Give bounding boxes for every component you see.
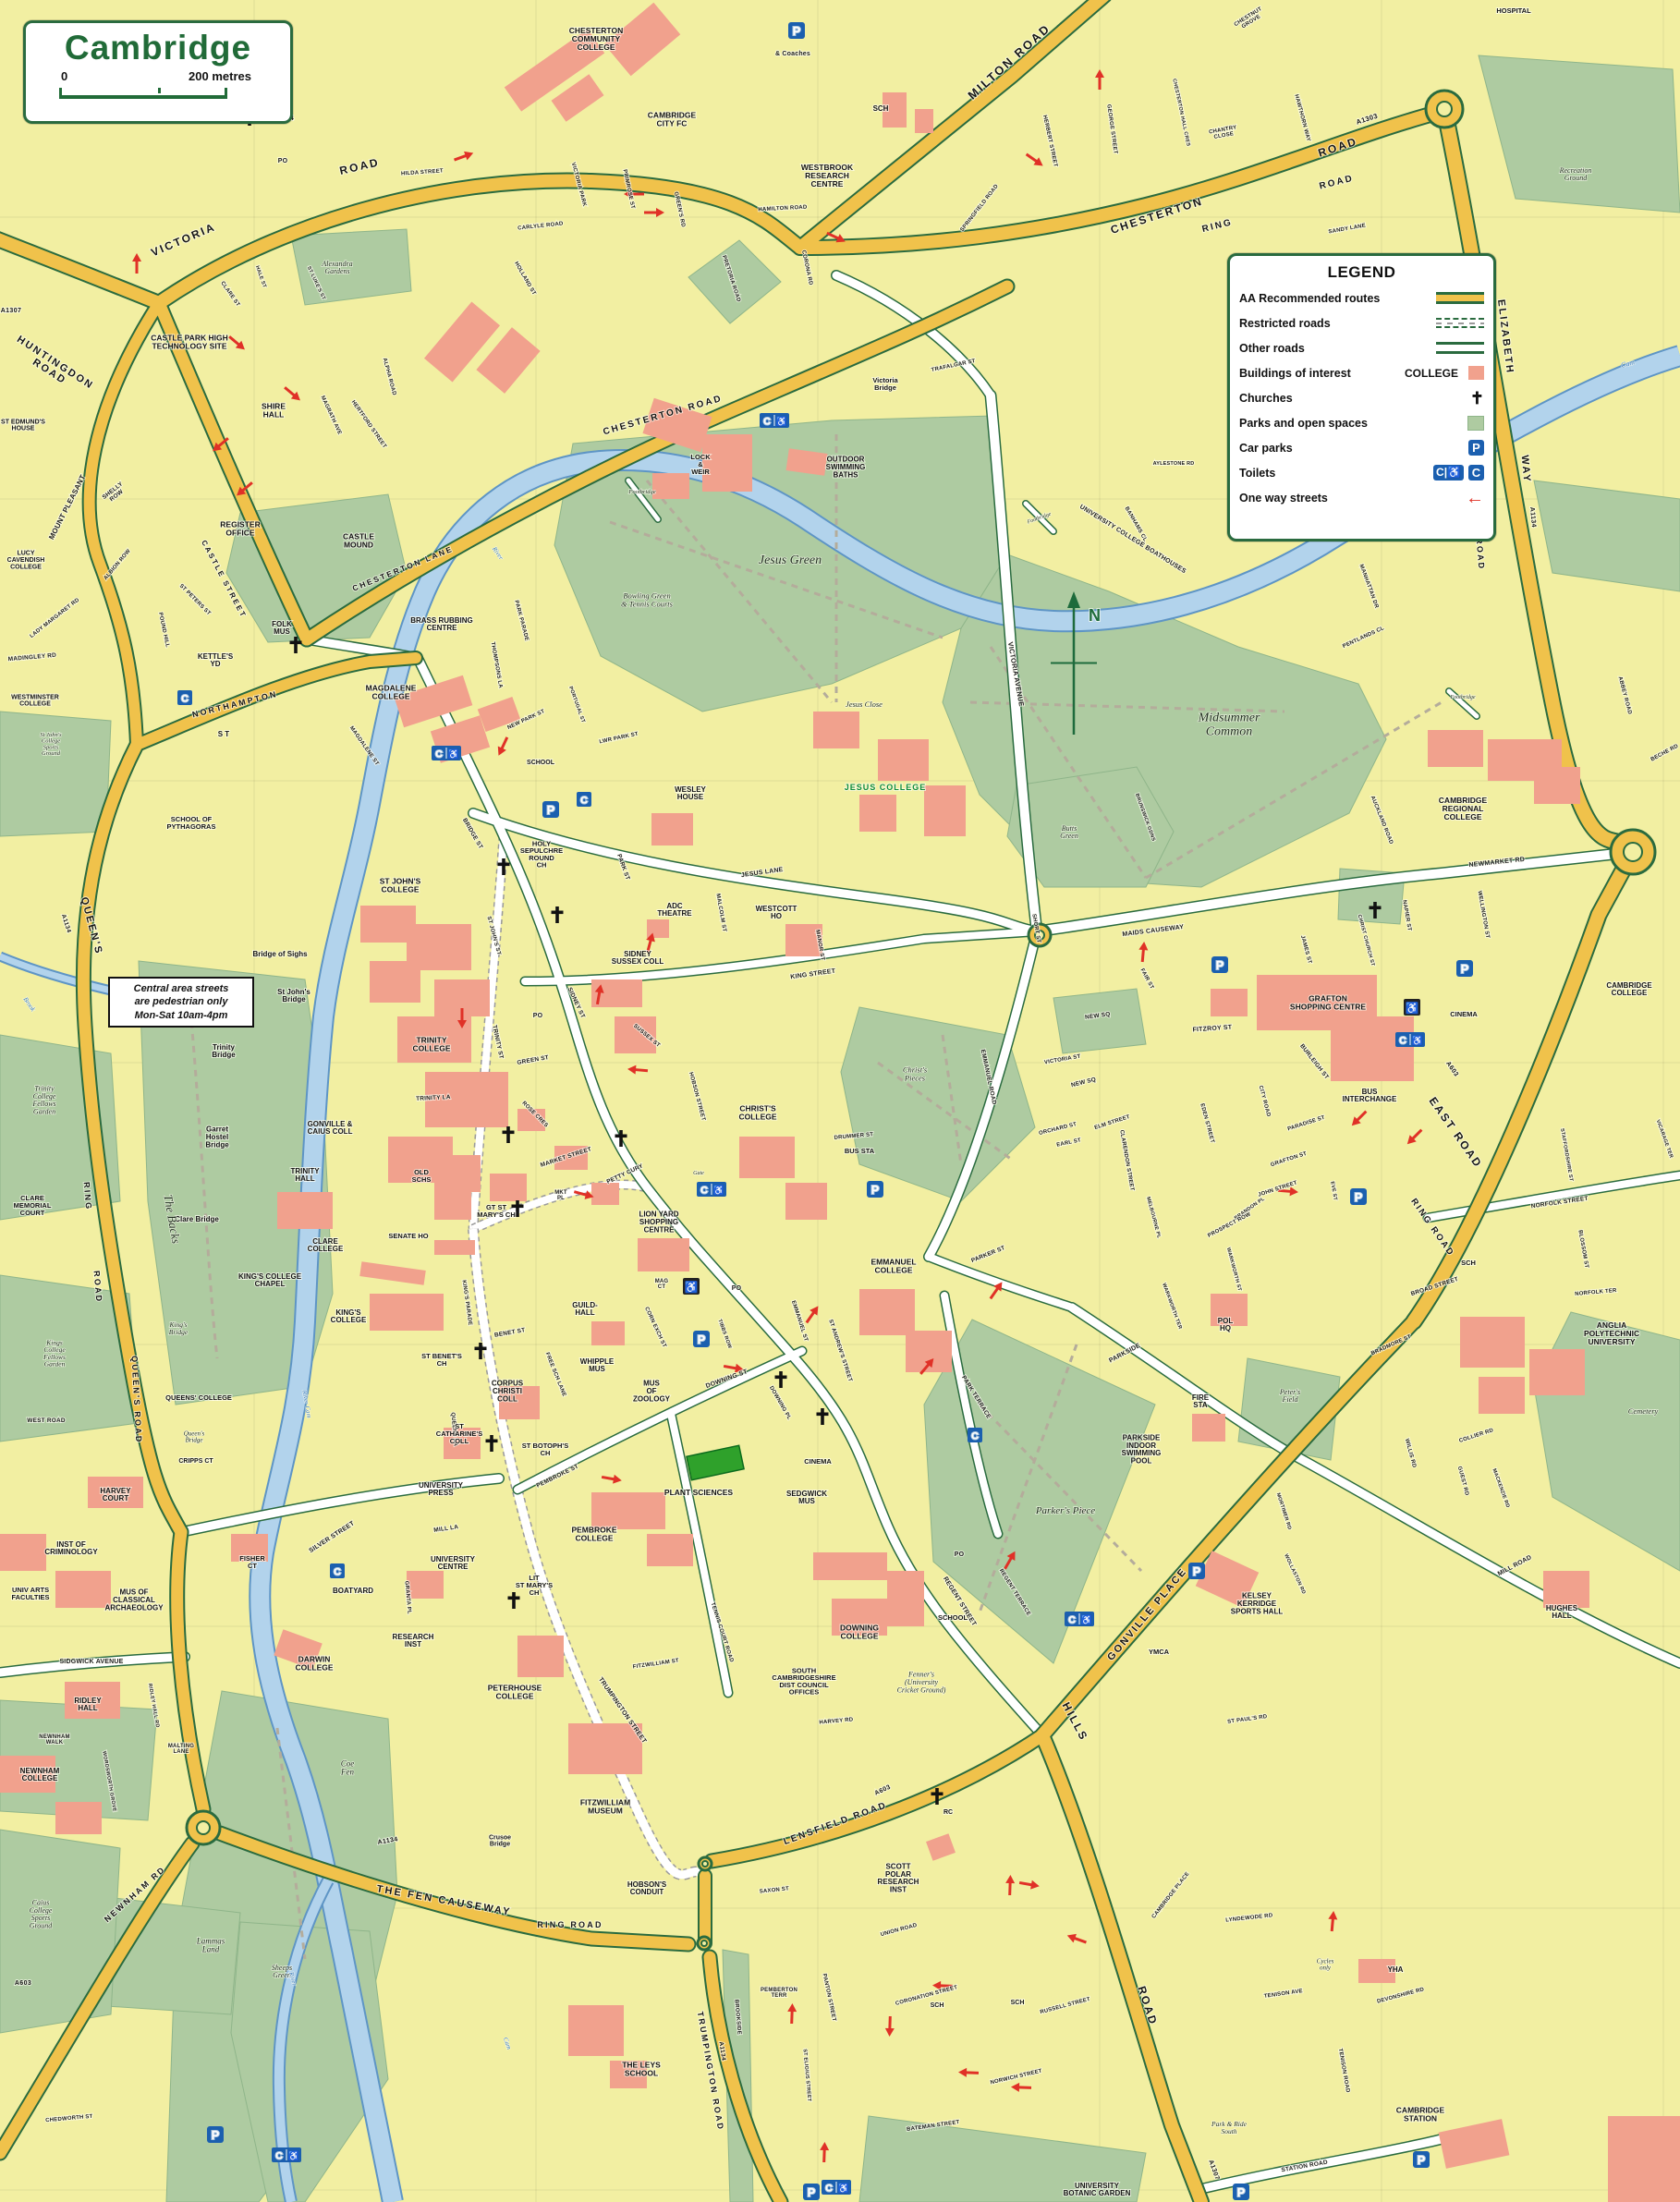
car-park-icon-letter: P	[1355, 1190, 1363, 1204]
pedestrian-note: Central area streets are pedestrian only…	[108, 977, 254, 1028]
scale-max-label: 200 metres	[189, 69, 251, 83]
building	[1192, 1414, 1225, 1442]
legend-item-oneway: One way streets←	[1239, 485, 1484, 510]
scale-bar-line	[59, 88, 227, 99]
map-label: SHIREHALL	[262, 402, 286, 420]
legend-swatch-park	[1467, 416, 1484, 431]
map-label: THE LEYSSCHOOL	[622, 2061, 661, 2078]
map-label: CHRIST'SCOLLEGE	[738, 1104, 776, 1122]
map-label: DARWINCOLLEGE	[295, 1655, 333, 1673]
map-label: BUS STA	[845, 1147, 875, 1155]
map-label: CINEMA	[804, 1457, 832, 1466]
car-park-icon-letter: P	[547, 803, 555, 817]
legend: LEGEND AA Recommended routesRestricted r…	[1227, 253, 1496, 541]
map-label: HOSPITAL	[1496, 6, 1531, 15]
building	[407, 1571, 444, 1599]
church-cross-icon	[555, 906, 559, 923]
park-area	[0, 1830, 120, 2033]
map-label: TRINITYCOLLEGE	[412, 1036, 450, 1053]
building	[1543, 1571, 1589, 1608]
building	[647, 1534, 693, 1566]
map-label: QUEENS' COLLEGE	[165, 1393, 232, 1402]
map-label: CHESTERTONCOMMUNITYCOLLEGE	[569, 26, 623, 52]
roundabout-island	[197, 1821, 210, 1834]
map-label: GONVILLE &CAIUS COLL	[308, 1120, 353, 1136]
map-label: A1307	[1, 308, 22, 314]
map-label: HOBSON'SCONDUIT	[627, 1880, 667, 1896]
building	[1534, 767, 1580, 804]
map-label: Gate	[693, 1171, 704, 1176]
building	[370, 961, 420, 1003]
legend-item-route: AA Recommended routes	[1239, 286, 1484, 310]
legend-item-label: Other roads	[1239, 342, 1305, 355]
legend-item-other: Other roads	[1239, 335, 1484, 360]
map-label: Jesus Close	[846, 700, 883, 709]
toilet-icon-letter: C	[580, 796, 588, 807]
map-label: SENATE HO	[388, 1232, 428, 1240]
legend-item-restricted: Restricted roads	[1239, 310, 1484, 335]
building	[0, 1534, 46, 1571]
building	[1479, 1377, 1525, 1414]
map-label: YHA	[1388, 1965, 1404, 1974]
building	[915, 109, 933, 133]
map-label: UNIV ARTSFACULTIES	[11, 1586, 49, 1601]
map-label: PO	[533, 1013, 543, 1019]
church-cross-icon	[779, 1371, 783, 1388]
wheelchair-glyph: ♿	[1081, 1614, 1092, 1626]
toilet-icon-letter: C	[763, 417, 771, 428]
map-label: CRIPPS CT	[178, 1458, 213, 1465]
legend-swatch-toilets: C|♿C	[1433, 465, 1484, 481]
building	[277, 1192, 333, 1229]
building	[859, 1289, 915, 1335]
church-cross-icon	[817, 1413, 829, 1417]
building	[859, 795, 896, 832]
map-label: Bridge of Sighs	[252, 950, 308, 958]
legend-college-text: COLLEGE	[1405, 367, 1458, 380]
car-park-icon-letter: P	[1461, 962, 1469, 976]
map-label: Queen'sBridge	[184, 1429, 205, 1443]
map-label: NEWNHAMCOLLEGE	[20, 1767, 60, 1782]
car-park-icon-letter: P	[1216, 958, 1224, 972]
wheelchair-glyph: ♿	[448, 748, 459, 760]
north-label: N	[1089, 606, 1101, 625]
map-label: GUILD-HALL	[572, 1301, 598, 1317]
legend-title: LEGEND	[1239, 263, 1484, 282]
map-label: CASTLEMOUND	[343, 532, 374, 550]
car-park-icon-letter: P	[212, 2128, 220, 2142]
building	[1211, 989, 1248, 1016]
map-label: LION YARDSHOPPINGCENTRE	[639, 1210, 678, 1235]
legend-swatch-route	[1436, 292, 1484, 304]
map-label: KingsCollegeFellowsGarden	[43, 1338, 66, 1368]
church-cross-icon	[512, 1205, 524, 1209]
map-label: DOWNINGCOLLEGE	[840, 1624, 879, 1641]
map-label: CAMBRIDGEREGIONALCOLLEGE	[1439, 796, 1488, 821]
car-park-icon-letter: P	[793, 24, 801, 38]
building	[591, 1183, 619, 1205]
wheelchair-glyph: ♿	[685, 1281, 699, 1294]
map-label: ST JOHN'SCOLLEGE	[380, 877, 421, 894]
map-label: OLDSCHS	[412, 1168, 432, 1184]
map-label: King'sBridge	[168, 1320, 188, 1336]
building	[434, 1240, 475, 1255]
map-label: Clare Bridge	[175, 1215, 219, 1223]
building	[647, 919, 669, 938]
scale-bar-tick	[158, 88, 161, 93]
legend-item-label: One way streets	[1239, 492, 1328, 505]
car-park-icon-letter: P	[1418, 2153, 1426, 2167]
legend-item-label: AA Recommended routes	[1239, 292, 1380, 305]
wheelchair-glyph: ♿	[838, 2183, 849, 2195]
map-label: SCH	[931, 2002, 944, 2009]
building	[1331, 1016, 1414, 1081]
building	[813, 712, 859, 748]
legend-item-label: Parks and open spaces	[1239, 417, 1368, 430]
church-cross-icon	[552, 911, 564, 915]
map-label: SCH	[1461, 1259, 1476, 1267]
roundabout-island	[701, 1940, 707, 1946]
legend-item-label: Buildings of interest	[1239, 367, 1351, 380]
scale-zero-label: 0	[61, 69, 67, 83]
building	[591, 1492, 665, 1529]
toilet-icon-letter: C	[1068, 1615, 1076, 1626]
map-label: SIDGWICK AVENUE	[59, 1659, 123, 1665]
toilet-icon-letter: C	[825, 2184, 833, 2195]
car-park-icon-letter: P	[871, 1183, 880, 1197]
map-label: PO	[955, 1551, 965, 1558]
legend-item-park: Parks and open spaces	[1239, 410, 1484, 435]
map-label: TrinityBridge	[212, 1043, 236, 1059]
note-line-1: Central area streets	[116, 982, 247, 995]
map-label: Peter'sField	[1279, 1388, 1300, 1404]
map-label: Cemetery	[1628, 1406, 1659, 1416]
map-label: CoeFen	[340, 1758, 354, 1776]
map-label: Jesus Green	[759, 554, 822, 567]
church-cross-icon	[508, 1597, 520, 1600]
park-area	[0, 712, 111, 836]
map-label: REGISTEROFFICE	[220, 520, 260, 538]
legend-item-carpark: Car parksP	[1239, 435, 1484, 460]
legend-item-college: Buildings of interestCOLLEGE	[1239, 360, 1484, 385]
church-cross-icon	[479, 1343, 482, 1359]
car-park-icon-letter: P	[698, 1332, 706, 1346]
map-label: MAGDALENECOLLEGE	[366, 684, 417, 701]
map-label: AlexandraGardens	[321, 260, 352, 275]
building	[568, 1723, 642, 1774]
map-label: HARVEYCOURT	[100, 1487, 131, 1502]
roundabout-island	[1437, 102, 1452, 116]
map-label: POLHQ	[1218, 1317, 1234, 1332]
legend-swatch-oneway: ←	[1466, 489, 1484, 507]
legend-swatch-carpark: P	[1468, 440, 1484, 456]
map-label: TrinityCollegeFellowsGarden	[31, 1085, 56, 1116]
map-label: FOLKMUS	[272, 620, 292, 636]
church-cross-icon	[775, 1376, 787, 1380]
wheelchair-glyph: ♿	[1406, 1002, 1419, 1015]
church-cross-icon	[1370, 906, 1382, 910]
map-label: ST	[218, 730, 232, 738]
map-label: PO	[278, 158, 288, 164]
legend-rows: AA Recommended routesRestricted roadsOth…	[1239, 286, 1484, 510]
map-label: RC	[943, 1809, 953, 1816]
map-label: SCHOOL	[527, 760, 555, 766]
building	[568, 2005, 624, 2056]
map-label: & Coaches	[775, 51, 810, 57]
building	[434, 1155, 481, 1192]
legend-item-label: Car parks	[1239, 442, 1293, 455]
church-cross-icon	[294, 637, 298, 653]
church-cross-icon	[619, 1130, 623, 1147]
map-label: PLANT SCIENCES	[664, 1488, 733, 1497]
map-label: A603	[15, 1980, 31, 1987]
map-label: BOATYARD	[333, 1587, 373, 1595]
toilet-icon-letter: C	[700, 1186, 708, 1197]
map-label: AYLESTONE RD	[1153, 461, 1195, 467]
building	[591, 1321, 625, 1345]
car-park-icon-letter: P	[1193, 1564, 1201, 1578]
building	[370, 1294, 444, 1331]
church-cross-icon	[821, 1408, 824, 1425]
legend-swatch-church: ✝	[1470, 390, 1484, 407]
wheelchair-glyph: ♿	[288, 2150, 299, 2162]
wheelchair-glyph: ♿	[1412, 1035, 1423, 1047]
map-label: RING ROAD	[537, 1920, 603, 1929]
note-line-3: Mon-Sat 10am-4pm	[116, 1009, 247, 1022]
building	[878, 739, 929, 781]
building	[924, 785, 966, 836]
church-cross-icon	[290, 641, 302, 645]
map-label: WESLEYHOUSE	[675, 785, 706, 801]
church-cross-icon	[490, 1435, 493, 1452]
map-label: St John'sCollegeSportsGround	[40, 732, 62, 757]
legend-item-label: Restricted roads	[1239, 317, 1331, 330]
church-cross-icon	[935, 1788, 939, 1805]
church-cross-icon	[516, 1200, 519, 1217]
car-park-icon-letter: P	[808, 2185, 816, 2199]
church-cross-icon	[512, 1592, 516, 1609]
map-label: JESUS COLLEGE	[845, 783, 927, 792]
cambridge-street-map: PPPPPPPPPPPPCCCCC♿C♿C♿C♿C♿C♿C♿♿♿NA1307HU…	[0, 0, 1680, 2202]
church-cross-icon	[502, 858, 505, 875]
toilet-icon-letter: C	[971, 1431, 979, 1442]
building	[517, 1636, 564, 1677]
church-cross-icon	[498, 863, 510, 867]
map-label: YMCA	[1149, 1648, 1170, 1656]
building	[702, 434, 752, 492]
building	[887, 1571, 924, 1626]
building	[490, 1174, 527, 1201]
legend-item-toilets: ToiletsC|♿C	[1239, 460, 1484, 485]
map-label: ButtsGreen	[1060, 824, 1078, 840]
map-label: SCH	[873, 104, 889, 113]
church-cross-icon	[486, 1440, 498, 1443]
map-label: PEMBROKECOLLEGE	[571, 1526, 616, 1543]
building	[1608, 2116, 1680, 2202]
map-label: Christ'sPieces	[903, 1065, 928, 1083]
building	[785, 1183, 827, 1220]
map-label: CINEMA	[1450, 1010, 1478, 1018]
church-cross-icon	[503, 1131, 515, 1135]
park-area	[1053, 989, 1146, 1053]
map-title-box: Cambridge 0 200 metres	[23, 20, 293, 124]
map-label: CAMBRIDGECOLLEGE	[1606, 981, 1652, 997]
map-label: FIRESTA	[1192, 1393, 1210, 1409]
map-label: CrusoeBridge	[489, 1834, 511, 1847]
church-cross-icon	[1373, 902, 1377, 919]
building	[55, 1571, 111, 1608]
map-label: EMMANUELCOLLEGE	[870, 1258, 916, 1275]
church-cross-icon	[506, 1126, 510, 1143]
map-label: GarretHostelBridge	[205, 1125, 229, 1150]
building	[813, 1552, 887, 1580]
legend-swatch-restricted	[1436, 318, 1484, 328]
map-label: PO	[732, 1285, 742, 1292]
building	[739, 1137, 795, 1178]
map-label: Bowling Green& Tennis Courts	[621, 591, 674, 609]
building	[651, 813, 693, 846]
church-cross-icon	[475, 1347, 487, 1351]
toilet-icon-letter: C	[435, 749, 443, 760]
toilet-icon-letter: C	[334, 1567, 341, 1578]
wheelchair-glyph: ♿	[713, 1185, 724, 1197]
building	[1529, 1349, 1585, 1395]
scale-bar: 0 200 metres	[52, 71, 264, 99]
map-label: MidsummerCommon	[1198, 712, 1260, 739]
church-cross-icon	[931, 1793, 943, 1796]
legend-swatch-college: COLLEGE	[1405, 366, 1484, 380]
map-label: SCHOOL OFPYTHAGORAS	[167, 815, 216, 831]
toilet-icon-letter: C	[181, 694, 189, 705]
map-label: Footbridge	[1450, 695, 1476, 700]
roundabout-island	[702, 1861, 708, 1867]
building	[1428, 730, 1483, 767]
building	[434, 1192, 471, 1220]
toilet-icon-letter: C	[1399, 1036, 1406, 1047]
building	[652, 473, 689, 499]
legend-swatch-other	[1436, 342, 1484, 354]
roundabout-island	[1624, 843, 1642, 861]
toilet-icon-letter: C	[275, 2151, 283, 2162]
map-label: VictoriaBridge	[872, 376, 898, 392]
legend-item-label: Churches	[1239, 392, 1293, 405]
building	[1460, 1317, 1525, 1368]
map-label: SCHOOL	[938, 1613, 968, 1622]
legend-item-church: Churches✝	[1239, 385, 1484, 410]
map-label: Parker's Piece	[1035, 1505, 1095, 1516]
map-label: WEST ROAD	[27, 1417, 66, 1424]
church-cross-icon	[615, 1135, 627, 1138]
map-label: SCH	[1011, 2000, 1025, 2006]
wheelchair-glyph: ♿	[776, 416, 787, 428]
map-label: Footbridge	[627, 489, 655, 495]
note-line-2: are pedestrian only	[116, 995, 247, 1008]
building	[55, 1802, 102, 1834]
map-title: Cambridge	[26, 29, 290, 67]
building	[638, 1238, 689, 1271]
car-park-icon-letter: P	[1237, 2185, 1246, 2199]
map-label: CASTLE PARK HIGHTECHNOLOGY SITE	[151, 334, 227, 351]
legend-item-label: Toilets	[1239, 467, 1275, 480]
map-label: RecreationGround	[1559, 166, 1592, 182]
